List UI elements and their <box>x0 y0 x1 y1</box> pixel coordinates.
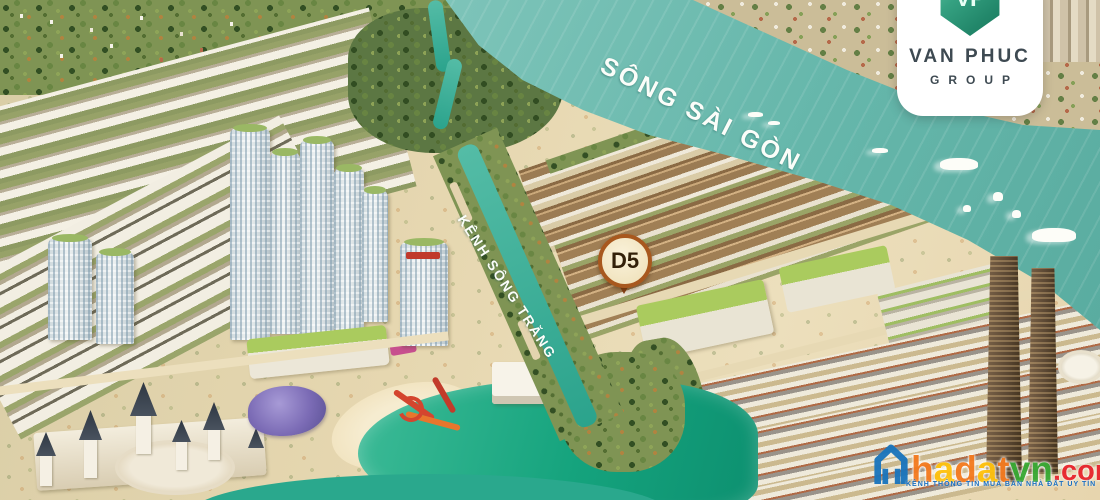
highrise-tower-4 <box>334 168 364 330</box>
castle-keep <box>136 414 151 454</box>
highrise-tower-5 <box>362 190 388 322</box>
castle-turret <box>208 428 220 460</box>
yacht-icon <box>1032 228 1076 242</box>
sailboat-icon <box>993 192 1003 201</box>
vp-hexagon-logo-icon: VP <box>938 0 1002 36</box>
highrise-tower-3 <box>300 140 334 338</box>
suburb-houses <box>20 14 23 18</box>
logo-name: VAN PHUC <box>909 46 1031 68</box>
castle-turret <box>84 438 97 478</box>
red-sign <box>406 252 440 259</box>
logo-monogram: VP <box>955 0 985 13</box>
midrise-tower-left-2 <box>96 252 134 344</box>
sailboat-icon <box>1012 210 1021 218</box>
pin-label-badge: D5 <box>598 234 652 288</box>
round-pavilion <box>1058 350 1100 384</box>
midrise-tower-left-1 <box>48 238 92 340</box>
aerial-render-scene: SÔNG SÀI GÒN KÊNH SÔNG TRĂNG D5 VP VAN P… <box>0 0 1100 500</box>
castle-turret <box>176 440 187 470</box>
watermark: hadatvn .com.vn <box>872 442 1100 486</box>
logo-card: VP VAN PHUC GROUP <box>897 0 1043 116</box>
castle-turret <box>40 452 52 486</box>
highrise-tower-1 <box>230 128 270 340</box>
watermark-tagline: KÊNH THÔNG TIN MUA BÁN NHÀ ĐẤT UY TÍN <box>906 481 1096 488</box>
boat-icon <box>748 112 763 117</box>
yacht-icon <box>940 158 978 170</box>
pin-label: D5 <box>611 248 639 274</box>
far-city-buildings <box>1042 0 1100 62</box>
house-icon <box>872 442 910 486</box>
highrise-tower-2 <box>270 152 300 334</box>
sailboat-icon <box>963 205 971 212</box>
boat-icon <box>768 121 780 125</box>
speedboat-icon <box>872 148 888 153</box>
map-pin-icon: D5 <box>596 234 654 306</box>
logo-subname: GROUP <box>921 73 1019 87</box>
